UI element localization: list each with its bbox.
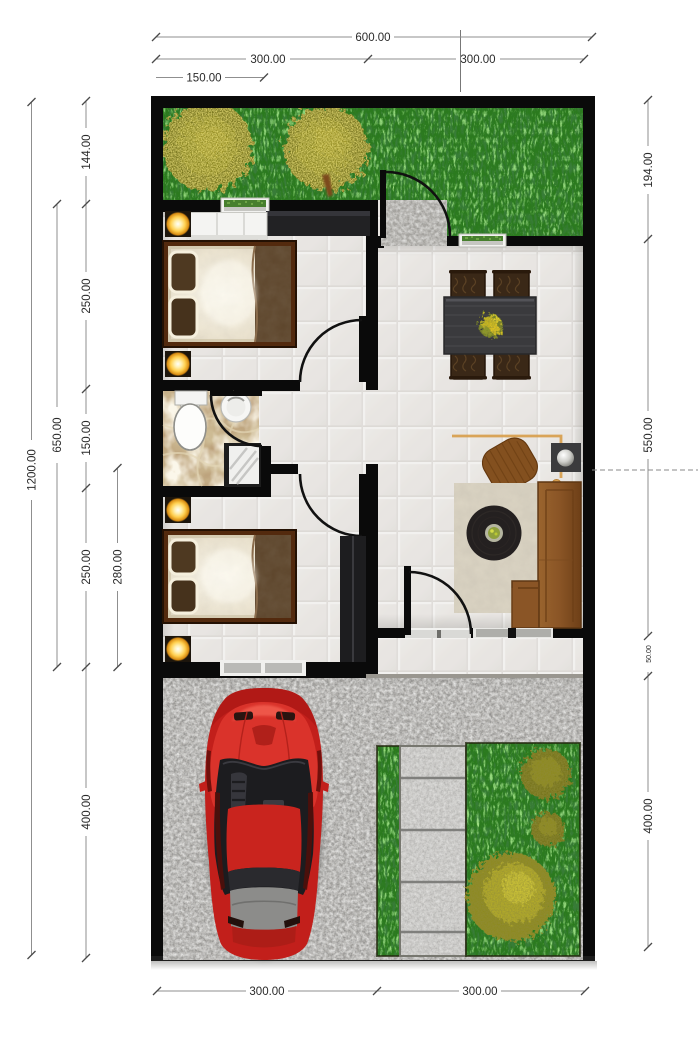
svg-text:300.00: 300.00 (250, 54, 285, 66)
svg-text:400.00: 400.00 (643, 798, 655, 833)
svg-text:280.00: 280.00 (113, 549, 125, 584)
svg-text:250.00: 250.00 (81, 278, 93, 313)
svg-text:300.00: 300.00 (249, 986, 284, 998)
svg-text:194.00: 194.00 (643, 152, 655, 187)
svg-text:150.00: 150.00 (81, 420, 93, 455)
svg-text:144.00: 144.00 (81, 134, 93, 169)
svg-text:550.00: 550.00 (643, 417, 655, 452)
svg-text:600.00: 600.00 (355, 32, 390, 44)
svg-text:400.00: 400.00 (81, 794, 93, 829)
svg-text:50.00: 50.00 (646, 645, 653, 663)
svg-text:300.00: 300.00 (460, 54, 495, 66)
svg-text:1200.00: 1200.00 (27, 449, 39, 491)
svg-text:150.00: 150.00 (186, 73, 221, 85)
svg-text:250.00: 250.00 (81, 549, 93, 584)
svg-text:300.00: 300.00 (462, 986, 497, 998)
svg-text:650.00: 650.00 (52, 417, 64, 452)
